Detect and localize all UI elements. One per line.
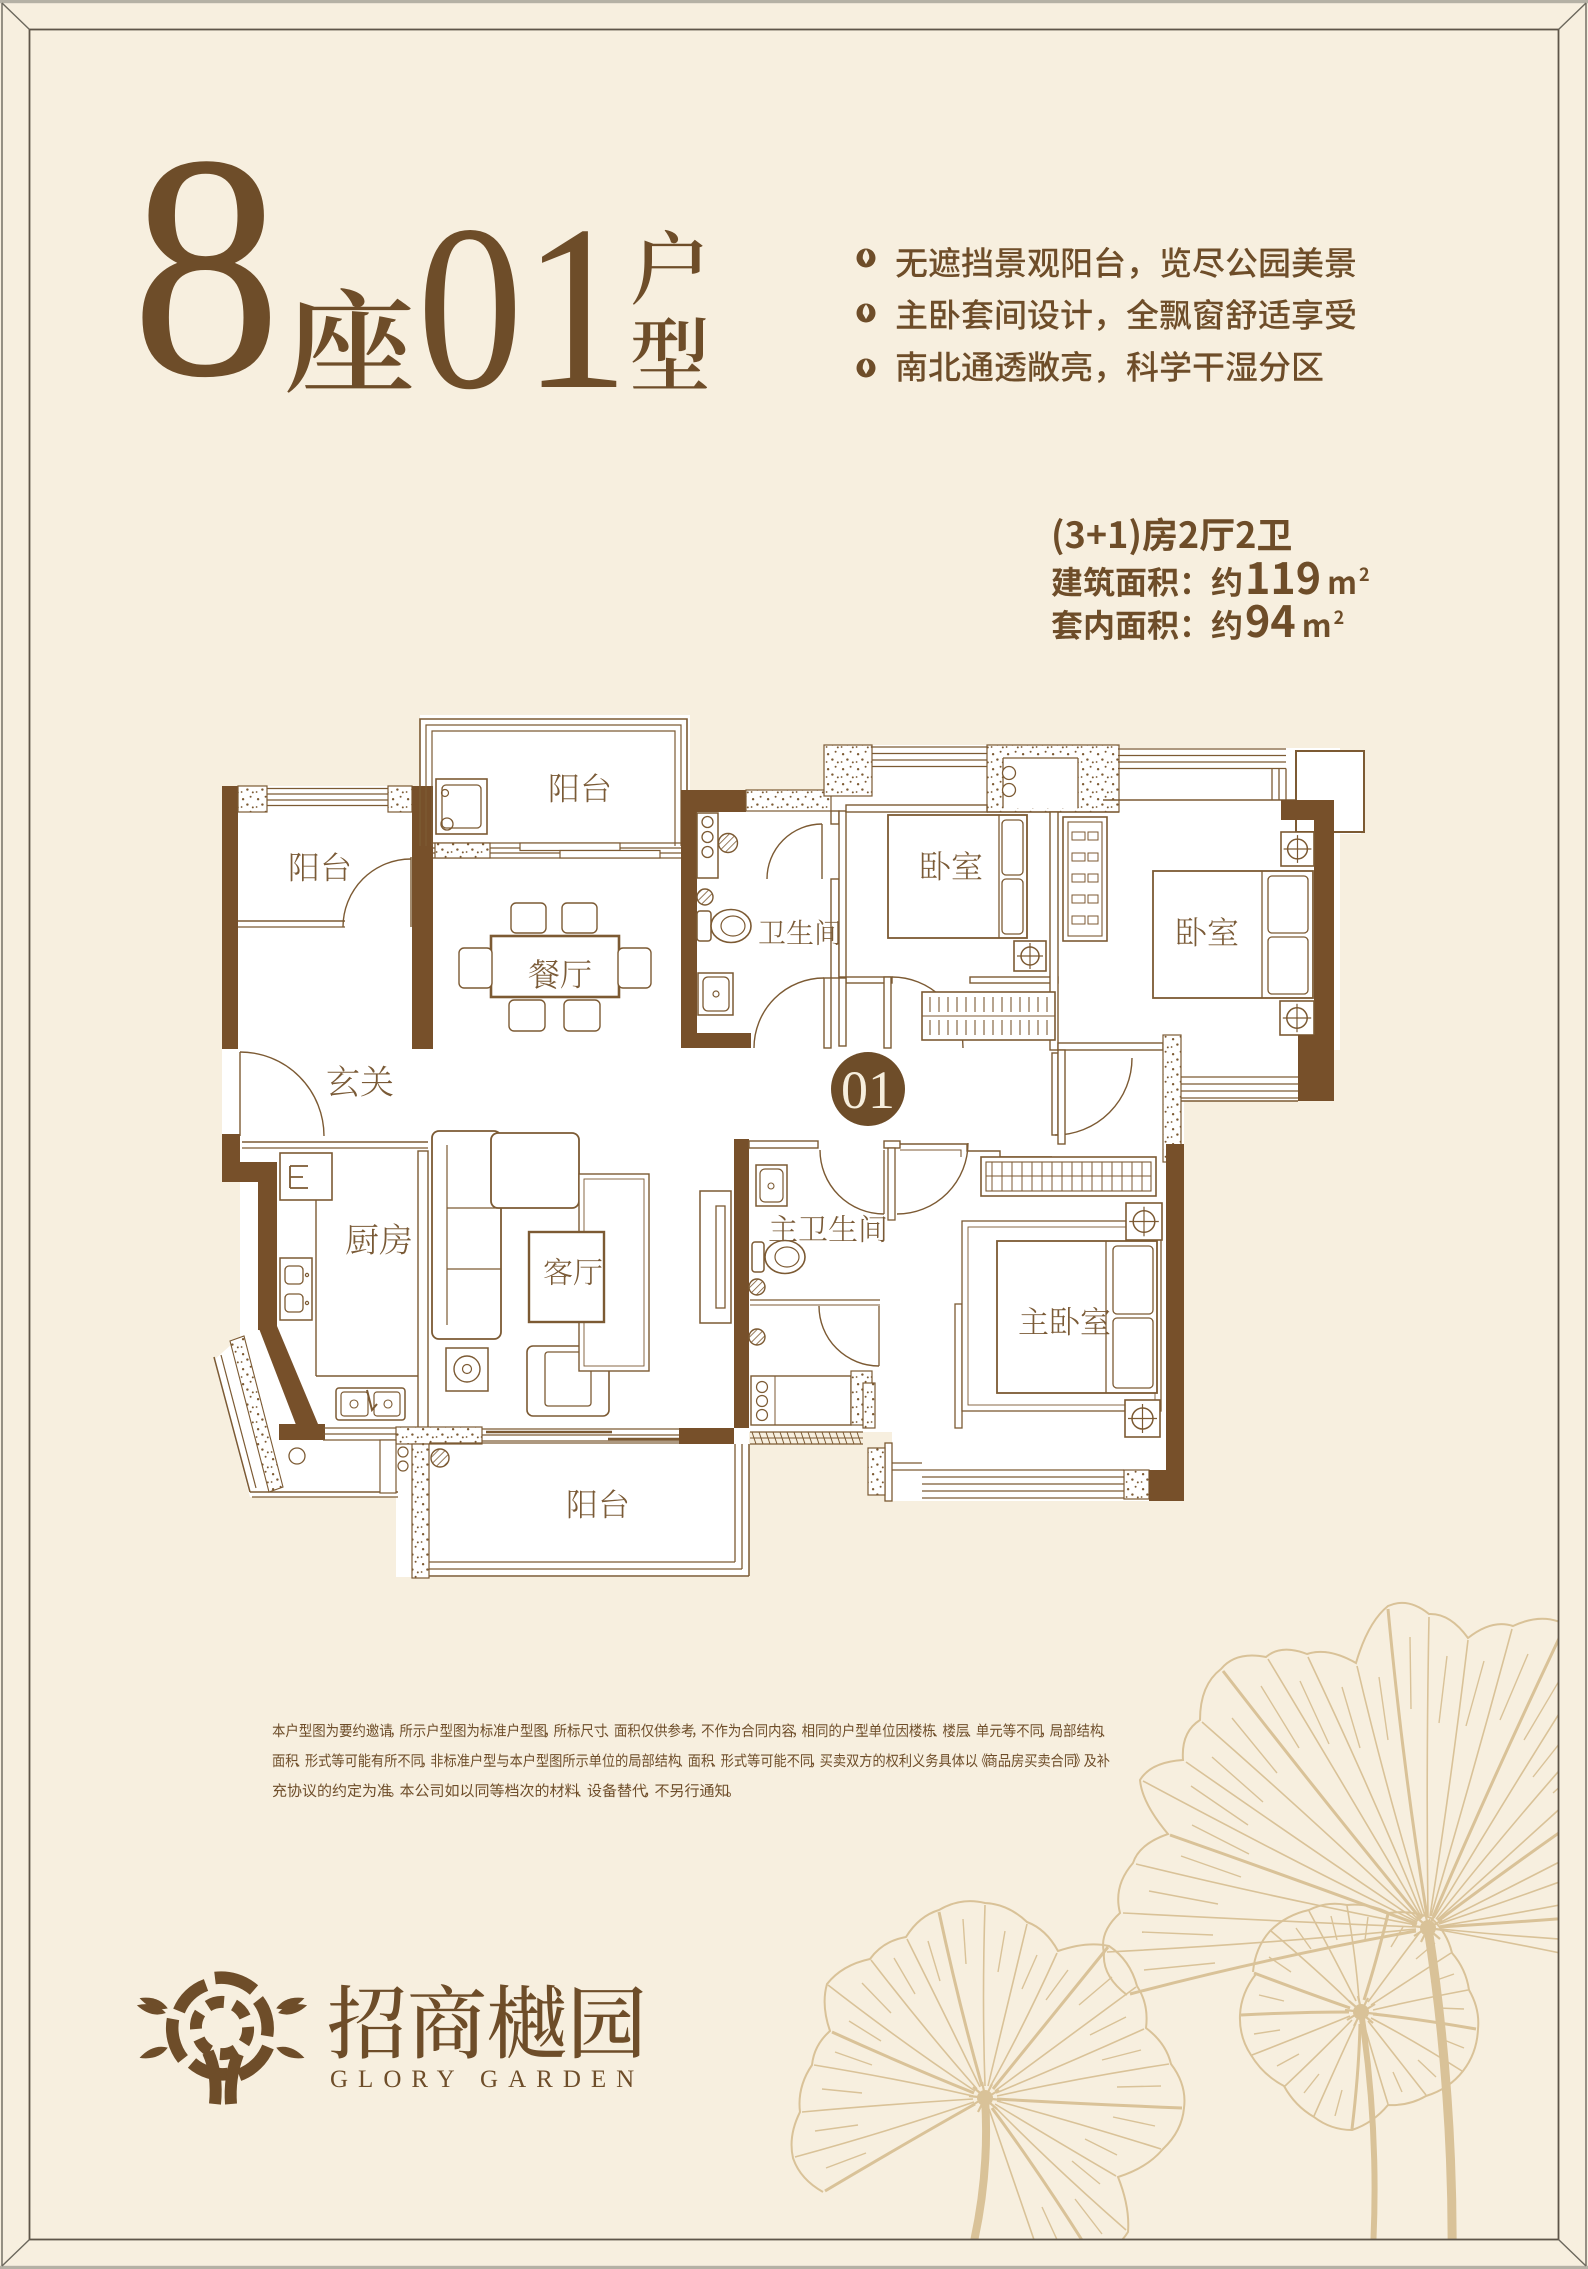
- svg-text:01: 01: [417, 178, 629, 439]
- svg-text:GLORY GARDEN: GLORY GARDEN: [330, 2066, 644, 2093]
- svg-text:01: 01: [841, 1060, 895, 1120]
- svg-text:8: 8: [131, 90, 281, 444]
